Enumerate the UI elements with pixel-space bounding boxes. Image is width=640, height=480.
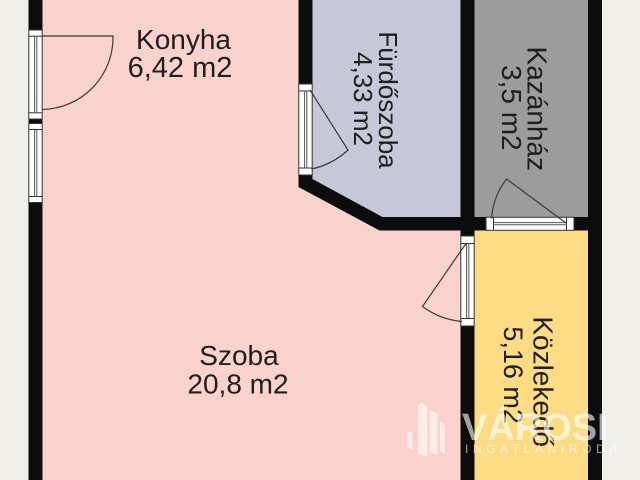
svg-text:4,33 m2: 4,33 m2: [348, 52, 378, 146]
svg-text:20,8 m2: 20,8 m2: [187, 369, 288, 400]
svg-text:3,5 m2: 3,5 m2: [496, 65, 527, 151]
svg-text:Konyha: Konyha: [136, 24, 231, 55]
svg-text:INGATLANIRODA: INGATLANIRODA: [465, 442, 622, 456]
svg-text:6,42 m2: 6,42 m2: [128, 52, 233, 84]
svg-text:Szoba: Szoba: [199, 340, 279, 371]
